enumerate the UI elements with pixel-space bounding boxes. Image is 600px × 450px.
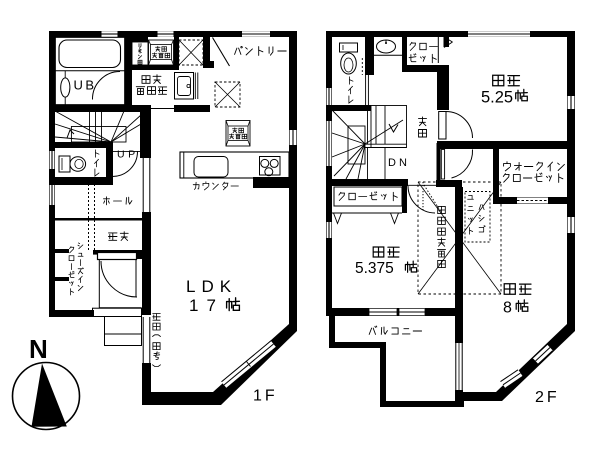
- svg-text:UB: UB: [74, 78, 97, 93]
- svg-text:LDK: LDK: [186, 277, 237, 296]
- svg-text:17: 17: [189, 296, 224, 315]
- svg-text:2F: 2F: [535, 389, 560, 406]
- svg-text:N: N: [29, 334, 48, 364]
- svg-text:1F: 1F: [253, 388, 278, 405]
- svg-text:DN: DN: [388, 157, 410, 169]
- svg-text:UP: UP: [117, 149, 139, 161]
- svg-text:8: 8: [503, 300, 512, 317]
- svg-text:5.375: 5.375: [355, 260, 394, 277]
- svg-text:5.25: 5.25: [481, 89, 513, 107]
